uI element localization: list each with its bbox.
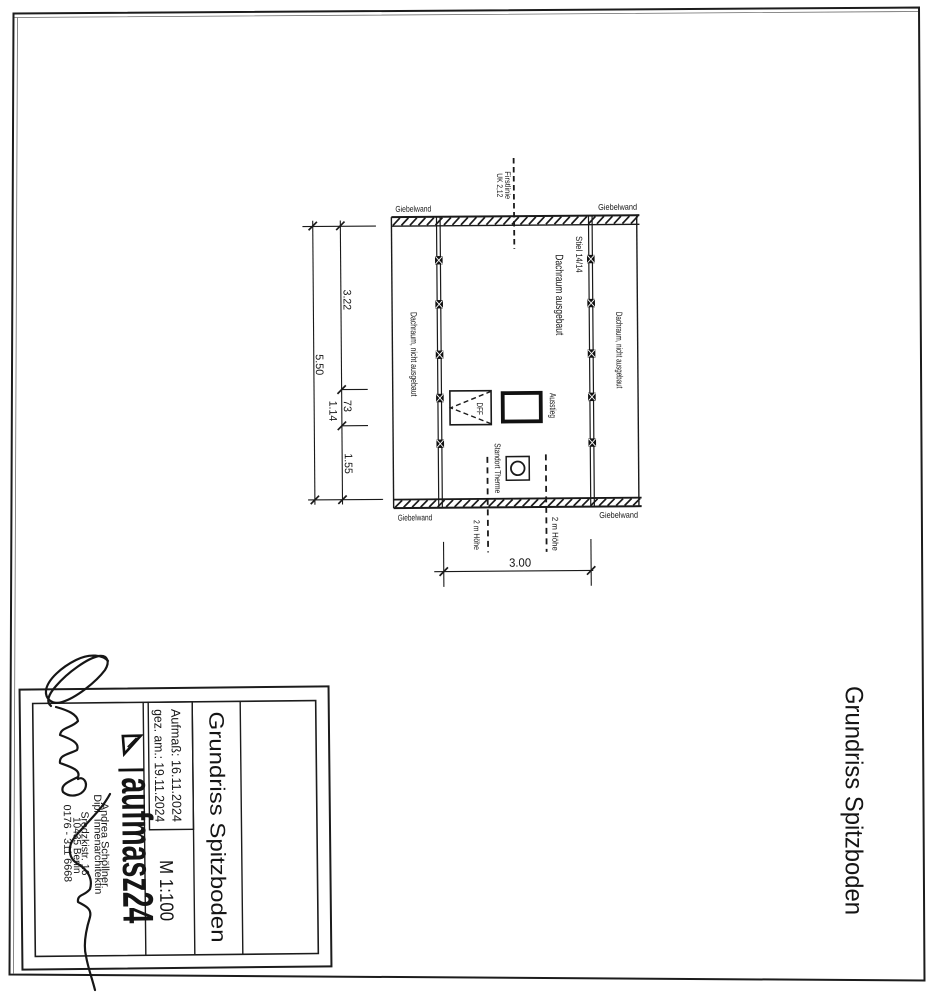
svg-text:Giebelwand: Giebelwand <box>599 510 638 520</box>
svg-text:2 m Höhe: 2 m Höhe <box>472 520 482 550</box>
svg-text:Grundriss Spitzboden: Grundriss Spitzboden <box>840 686 868 915</box>
svg-text:Ausstieg: Ausstieg <box>548 393 558 418</box>
svg-text:2 m Höhe: 2 m Höhe <box>550 517 560 551</box>
svg-text:Grundriss Spitzboden: Grundriss Spitzboden <box>204 711 229 942</box>
svg-text:1.14: 1.14 <box>326 401 338 422</box>
svg-text:Dipl. Innenarchitektin: Dipl. Innenarchitektin <box>91 794 104 894</box>
svg-text:Dachraum, nicht ausgebaut: Dachraum, nicht ausgebaut <box>409 312 420 397</box>
svg-text:1.55: 1.55 <box>342 453 354 474</box>
svg-text:5.50: 5.50 <box>313 354 325 375</box>
svg-text:Dachraum ausgebaut: Dachraum ausgebaut <box>553 254 566 335</box>
svg-text:DFF: DFF <box>475 402 485 415</box>
svg-text:73: 73 <box>341 400 353 412</box>
svg-text:Giebelwand: Giebelwand <box>398 512 433 522</box>
svg-text:aufmasz24: aufmasz24 <box>112 777 162 924</box>
svg-text:Giebelwand: Giebelwand <box>598 202 637 212</box>
svg-text:UK 2,12: UK 2,12 <box>495 173 504 198</box>
svg-text:3.00: 3.00 <box>509 556 531 570</box>
svg-text:Aufmaß: 16.11.2024: Aufmaß: 16.11.2024 <box>168 709 184 822</box>
svg-text:3.22: 3.22 <box>340 290 352 311</box>
svg-text:Dachraum, nicht ausgebaut: Dachraum, nicht ausgebaut <box>614 312 625 389</box>
svg-text:Stiel 14/14: Stiel 14/14 <box>574 236 584 273</box>
svg-text:Standort Therme: Standort Therme <box>493 443 503 493</box>
svg-text:Giebelwand: Giebelwand <box>395 204 431 214</box>
